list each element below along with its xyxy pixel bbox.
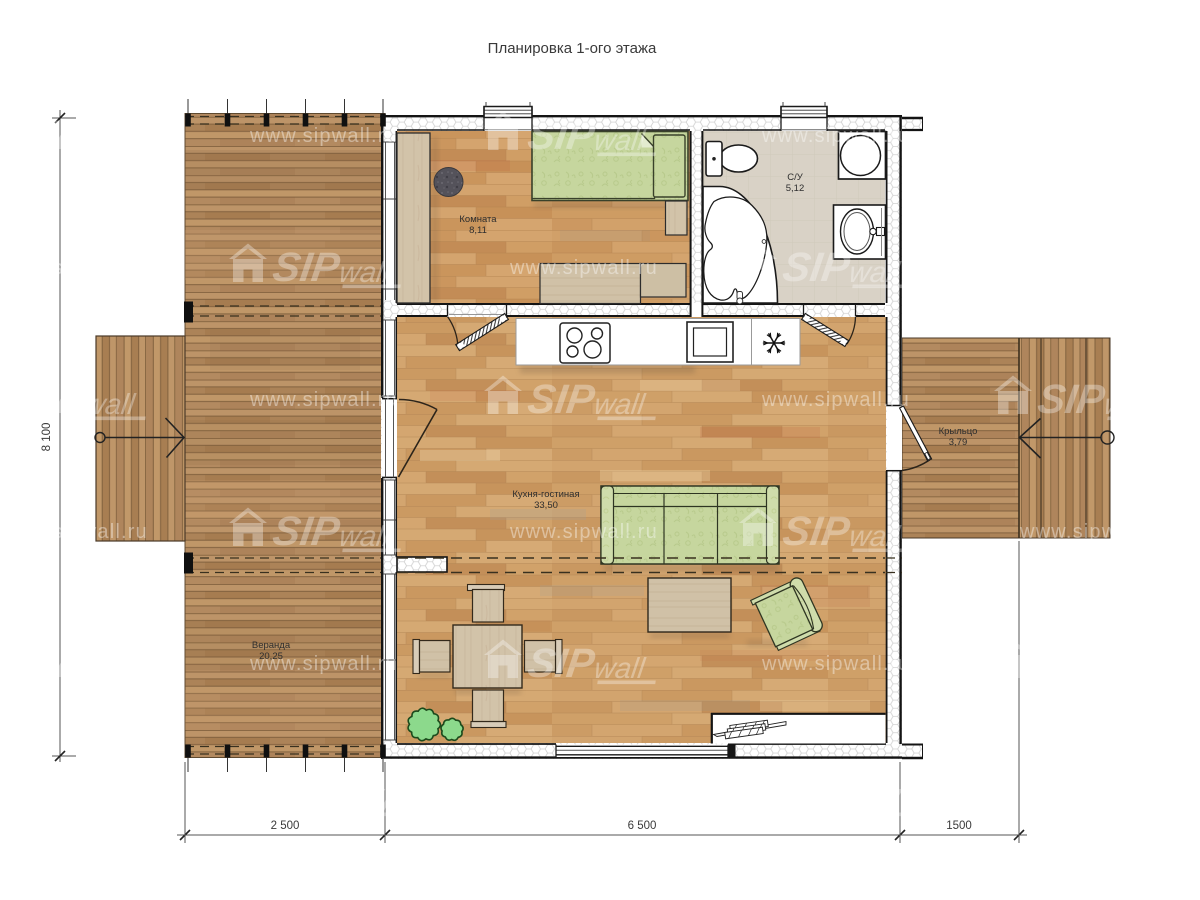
svg-text:wall: wall bbox=[337, 521, 393, 553]
svg-text:wall: wall bbox=[337, 257, 393, 289]
svg-text:www.sipwall.ru: www.sipwall.ru bbox=[761, 389, 910, 411]
svg-text:wall: wall bbox=[592, 653, 648, 685]
svg-text:wall: wall bbox=[847, 257, 903, 289]
svg-text:SIP: SIP bbox=[270, 508, 343, 554]
svg-text:SIP: SIP bbox=[780, 772, 853, 818]
svg-text:www.sipwall.ru: www.sipwall.ru bbox=[1019, 257, 1168, 279]
svg-text:2 500: 2 500 bbox=[271, 820, 300, 832]
svg-text:6 500: 6 500 bbox=[628, 820, 657, 832]
svg-text:SIP: SIP bbox=[15, 640, 88, 686]
svg-text:www.sipwall.ru: www.sipwall.ru bbox=[509, 257, 658, 279]
svg-text:SIP: SIP bbox=[780, 244, 853, 290]
svg-text:SIP: SIP bbox=[525, 640, 598, 686]
svg-text:SIP: SIP bbox=[1035, 376, 1108, 422]
svg-text:www.sipwall.ru: www.sipwall.ru bbox=[0, 785, 148, 807]
svg-text:8,11: 8,11 bbox=[469, 225, 487, 236]
svg-text:8 100: 8 100 bbox=[41, 423, 53, 452]
svg-text:Кухня-гостиная: Кухня-гостиная bbox=[512, 489, 579, 500]
svg-text:www.sipwall.ru: www.sipwall.ru bbox=[0, 521, 148, 543]
svg-text:wall: wall bbox=[82, 125, 138, 157]
svg-text:SIP: SIP bbox=[270, 244, 343, 290]
svg-text:Веранда: Веранда bbox=[252, 640, 291, 651]
svg-text:www.sipwall.ru: www.sipwall.ru bbox=[761, 653, 910, 675]
svg-text:wall: wall bbox=[847, 785, 903, 817]
svg-text:3,79: 3,79 bbox=[949, 437, 968, 448]
svg-text:Планировка 1-ого этажа: Планировка 1-ого этажа bbox=[488, 40, 657, 57]
svg-text:www.sipwall.ru: www.sipwall.ru bbox=[249, 389, 398, 411]
svg-text:www.sipwall.ru: www.sipwall.ru bbox=[249, 125, 398, 147]
svg-text:5,12: 5,12 bbox=[786, 183, 805, 194]
svg-text:SIP: SIP bbox=[15, 376, 88, 422]
svg-text:wall: wall bbox=[82, 389, 138, 421]
svg-text:SIP: SIP bbox=[270, 772, 343, 818]
svg-text:Крыльцо: Крыльцо bbox=[939, 426, 978, 437]
svg-text:SIP: SIP bbox=[15, 112, 88, 158]
svg-text:SIP: SIP bbox=[1035, 640, 1108, 686]
svg-text:1500: 1500 bbox=[946, 820, 972, 832]
svg-text:Комната: Комната bbox=[459, 214, 497, 225]
svg-text:wall: wall bbox=[847, 521, 903, 553]
svg-text:SIP: SIP bbox=[525, 376, 598, 422]
svg-text:wall: wall bbox=[1102, 389, 1158, 421]
svg-text:www.sipwall.ru: www.sipwall.ru bbox=[0, 257, 148, 279]
svg-text:wall: wall bbox=[1102, 653, 1158, 685]
svg-text:www.sipwall.ru: www.sipwall.ru bbox=[509, 785, 658, 807]
svg-text:wall: wall bbox=[1102, 125, 1158, 157]
svg-text:wall: wall bbox=[82, 653, 138, 685]
svg-text:www.sipwall.ru: www.sipwall.ru bbox=[1019, 521, 1168, 543]
svg-text:www.sipwall.ru: www.sipwall.ru bbox=[1019, 785, 1168, 807]
svg-text:www.sipwall.ru: www.sipwall.ru bbox=[761, 125, 910, 147]
svg-text:33,50: 33,50 bbox=[534, 500, 558, 511]
svg-text:www.sipwall.ru: www.sipwall.ru bbox=[509, 521, 658, 543]
svg-text:wall: wall bbox=[592, 125, 648, 157]
svg-text:wall: wall bbox=[337, 785, 393, 817]
svg-text:www.sipwall.ru: www.sipwall.ru bbox=[249, 653, 398, 675]
svg-text:SIP: SIP bbox=[1035, 112, 1108, 158]
svg-text:SIP: SIP bbox=[780, 508, 853, 554]
svg-text:SIP: SIP bbox=[525, 112, 598, 158]
svg-text:С/У: С/У bbox=[787, 172, 804, 183]
svg-text:wall: wall bbox=[592, 389, 648, 421]
